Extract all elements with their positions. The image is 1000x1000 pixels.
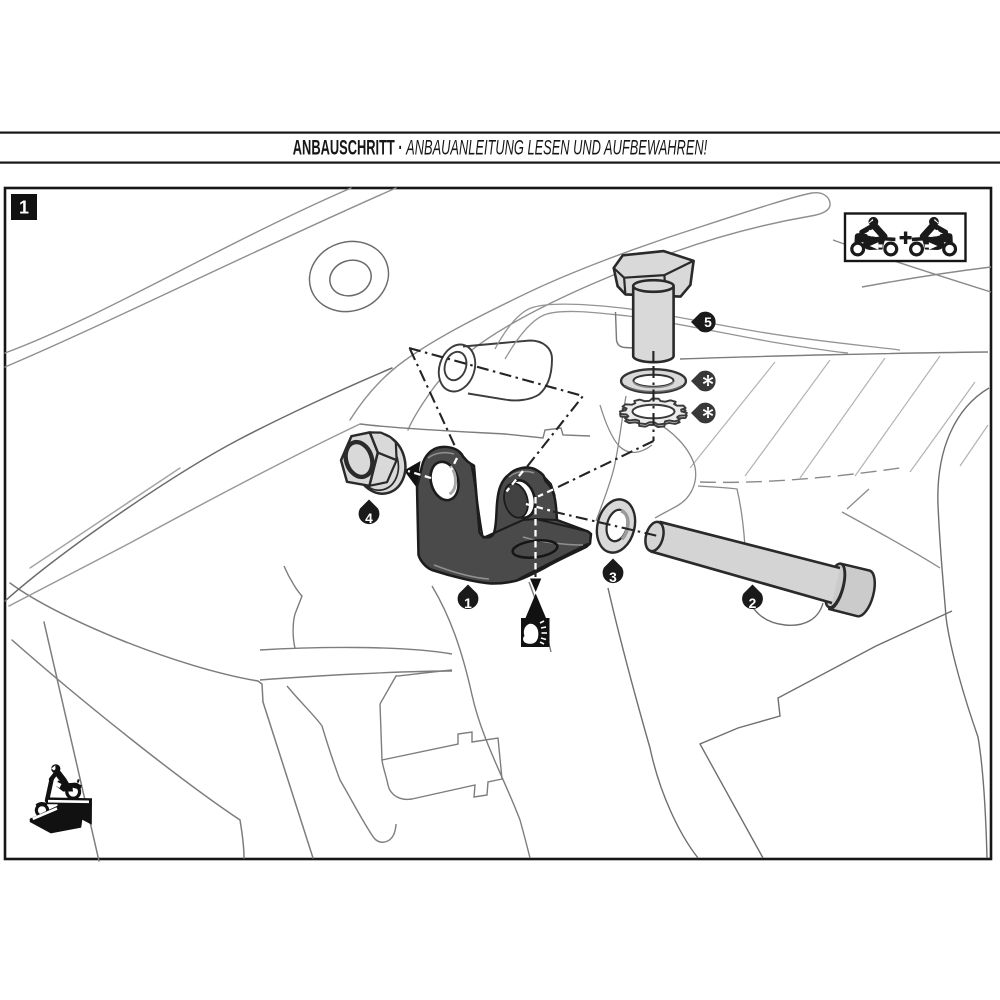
svg-text:ANBAUSCHRITT · ANBAUANLEITUNG: ANBAUSCHRITT · ANBAUANLEITUNG LESEN UND … [293,135,708,159]
svg-text:2: 2 [749,596,757,611]
svg-text:3: 3 [609,570,617,585]
svg-text:5: 5 [704,315,712,330]
svg-text:1: 1 [464,596,472,611]
svg-text:1: 1 [19,198,29,218]
svg-text:4: 4 [365,511,373,526]
